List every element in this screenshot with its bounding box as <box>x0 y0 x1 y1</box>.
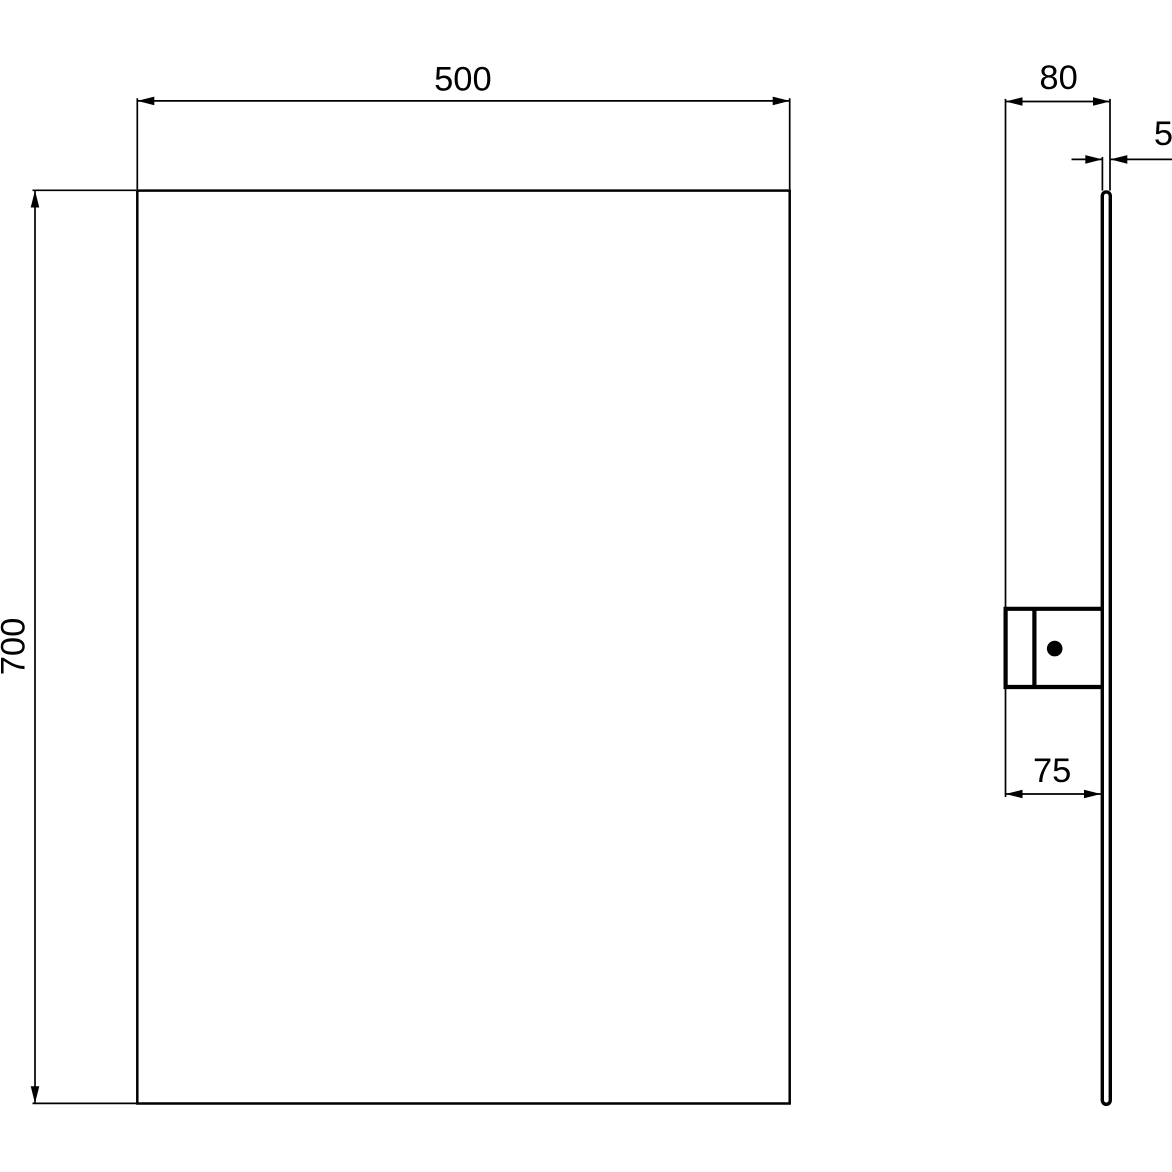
svg-text:700: 700 <box>0 618 32 676</box>
svg-text:75: 75 <box>1033 752 1071 790</box>
svg-text:80: 80 <box>1039 59 1077 97</box>
svg-text:5: 5 <box>1154 115 1172 153</box>
svg-text:500: 500 <box>434 61 492 99</box>
